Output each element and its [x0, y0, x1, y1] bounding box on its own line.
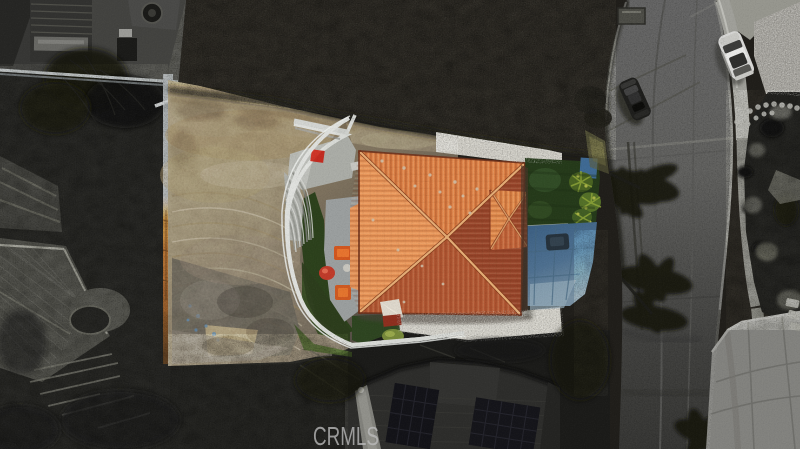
svg-text:CRMLS: CRMLS: [313, 421, 379, 449]
